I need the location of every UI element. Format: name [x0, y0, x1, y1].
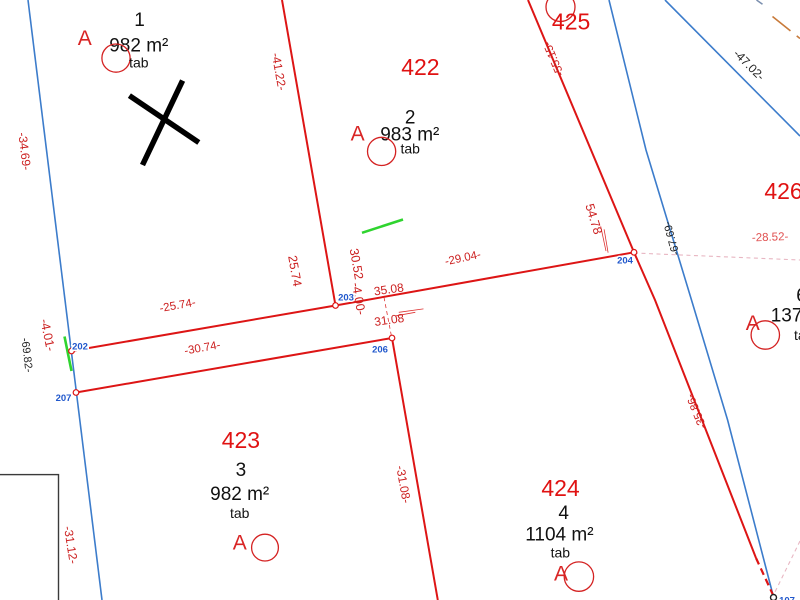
svg-text:426: 426 [764, 178, 800, 204]
svg-text:107: 107 [779, 596, 795, 600]
svg-text:tab: tab [551, 544, 571, 560]
svg-text:4: 4 [558, 503, 569, 524]
svg-text:206: 206 [372, 344, 388, 355]
svg-text:1: 1 [134, 10, 145, 31]
svg-text:tab: tab [400, 141, 420, 157]
svg-text:425: 425 [552, 8, 590, 34]
svg-text:204: 204 [617, 256, 634, 267]
svg-text:6: 6 [796, 285, 800, 306]
svg-text:3: 3 [236, 460, 247, 481]
svg-text:-28.52-: -28.52- [752, 231, 789, 244]
svg-text:1371 m²: 1371 m² [771, 305, 800, 326]
svg-text:tab: tab [129, 54, 149, 70]
svg-text:207: 207 [56, 393, 72, 404]
svg-text:203: 203 [338, 293, 354, 304]
svg-text:982 m²: 982 m² [210, 484, 269, 505]
svg-text:422: 422 [401, 54, 439, 80]
svg-text:424: 424 [541, 475, 580, 501]
svg-text:A: A [351, 123, 365, 146]
svg-text:1104 m²: 1104 m² [525, 525, 593, 546]
svg-text:tab: tab [230, 505, 250, 521]
svg-text:423: 423 [222, 427, 260, 453]
svg-text:A: A [233, 532, 247, 555]
svg-text:A: A [78, 27, 92, 50]
svg-text:202: 202 [72, 342, 88, 353]
svg-text:tab: tab [794, 327, 800, 343]
